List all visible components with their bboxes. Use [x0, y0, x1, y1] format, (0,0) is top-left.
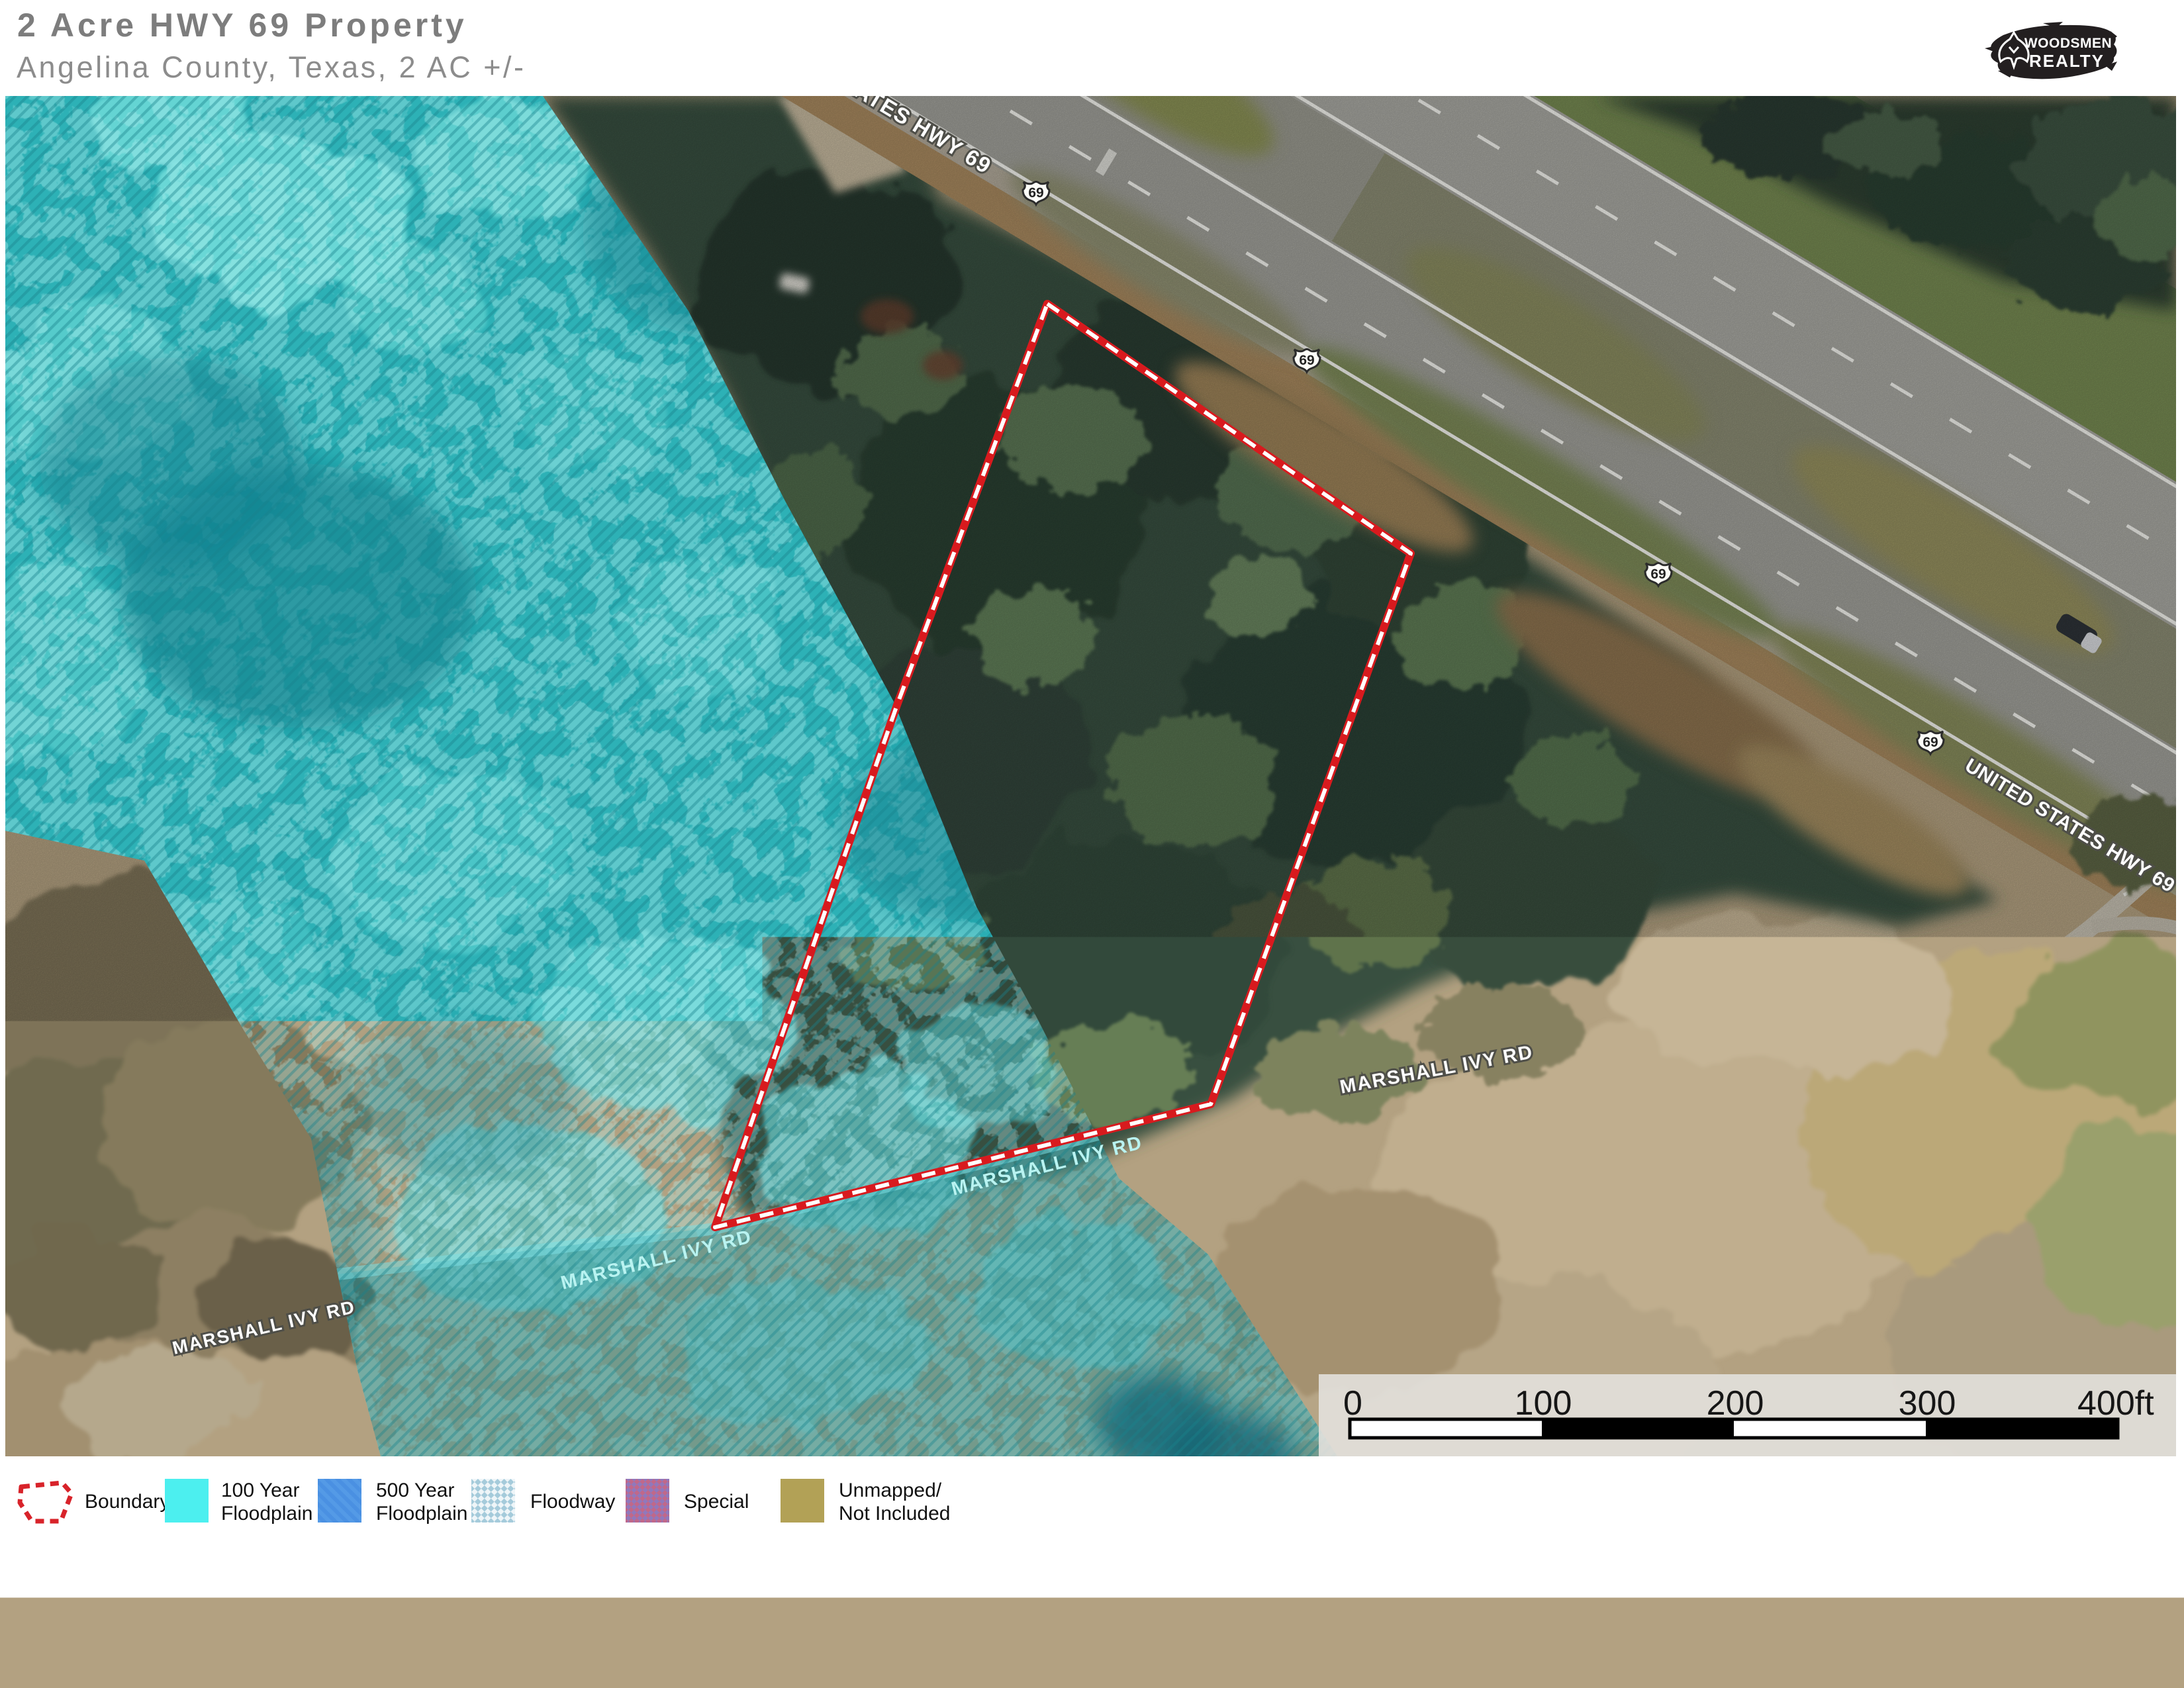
svg-text:400ft: 400ft — [2077, 1384, 2154, 1423]
svg-text:REALTY: REALTY — [2029, 51, 2105, 71]
svg-text:100: 100 — [1515, 1384, 1572, 1423]
svg-text:WOODSMEN: WOODSMEN — [2024, 36, 2112, 51]
svg-text:0: 0 — [1343, 1384, 1362, 1423]
svg-text:200: 200 — [1707, 1384, 1764, 1423]
svg-text:300: 300 — [1899, 1384, 1956, 1423]
